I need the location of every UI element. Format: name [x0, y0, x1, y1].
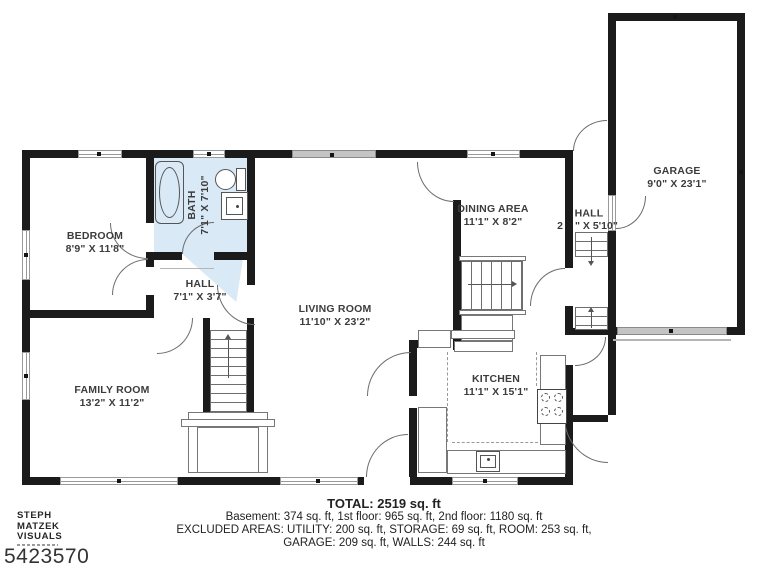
room-dims: 11'10" X 23'2": [299, 316, 372, 329]
wall-stair-right: [247, 318, 254, 414]
wall-bedroom-south: [22, 310, 154, 318]
counter-kitchen-south: [447, 450, 566, 474]
wall-hall-east-stub: [247, 260, 255, 285]
stair-center-arrow-head: [512, 281, 517, 287]
door-arc-hall-top-entry: [573, 120, 607, 151]
counter-dash-east: [536, 352, 537, 386]
wall-kitchen-west-lower: [409, 408, 417, 477]
excluded-areas: EXCLUDED AREAS: UTILITY: 200 sq. ft, STO…: [0, 524, 768, 537]
wall-garage-bottom-right: [727, 327, 745, 335]
wall-bedroom-east-upper: [146, 158, 154, 223]
label-dining-area: DINING AREA 11'1" X 8'2": [457, 203, 528, 229]
photo-id: 5423570: [4, 545, 89, 569]
wall-bath-east: [247, 158, 255, 260]
floor-areas: Basement: 374 sq. ft, 1st floor: 965 sq.…: [0, 511, 768, 524]
bathtub-basin: [159, 167, 180, 218]
watermark-line: VISUALS: [17, 532, 62, 543]
label-bath: BATH 7'1" X 7'10": [186, 175, 212, 234]
room-name: BATH: [186, 175, 199, 234]
wall-tick: [207, 152, 211, 156]
stove-burner-2: [554, 393, 563, 402]
stove-burner-3: [541, 407, 550, 416]
stove-burner-4: [554, 407, 563, 416]
floor-plan: BEDROOM 8'9" X 11'8" BATH 7'1" X 7'10" H…: [0, 0, 768, 576]
room-dims: 13'2" X 11'2": [74, 397, 149, 410]
counter-dash-west: [447, 352, 448, 442]
door-arc-bedroom-lower: [112, 259, 148, 295]
wall-tick: [669, 329, 673, 333]
wall-vestibule-east: [608, 335, 616, 415]
room-name: GARAGE: [647, 165, 706, 178]
label-kitchen: KITCHEN 11'1" X 15'1": [464, 373, 529, 399]
wall-tick: [24, 253, 28, 257]
stair-family-arrow-line: [228, 340, 229, 378]
bath-sink-basin: [226, 197, 243, 215]
kitchen-sink-faucet: [487, 458, 490, 461]
wall-east-dining: [565, 150, 573, 268]
total-area: TOTAL: 2519 sq. ft: [0, 497, 768, 511]
counter-dining-edge-right: [451, 330, 515, 339]
stair-hall-down-line: [591, 237, 592, 261]
door-arc-kitchen-living: [367, 352, 411, 396]
wall-tick: [673, 15, 677, 19]
wall-stair-left: [203, 318, 210, 414]
room-dims: 11'1" X 8'2": [457, 216, 528, 229]
garage-door-sill: [613, 339, 731, 341]
hall-living-threshold: [160, 268, 214, 269]
kitchen-sink-basin: [480, 455, 496, 468]
wall-tick: [491, 152, 495, 156]
stair-family-arrow-head: [225, 334, 231, 339]
stair-center-landing-2: [454, 341, 513, 352]
door-arc-dining-hall: [530, 268, 565, 306]
door-arc-vestibule: [575, 337, 606, 366]
room-name: BEDROOM: [66, 230, 125, 243]
label-hall-2-dims-right: " X 5'10": [575, 220, 618, 232]
counter-dash-south: [452, 442, 538, 443]
room-dims: 7'1" X 3'7": [173, 291, 226, 304]
room-dims: 8'9" X 11'8": [66, 243, 125, 256]
stair-hall-down-head: [588, 261, 594, 266]
label-living-room: LIVING ROOM 11'10" X 23'2": [299, 303, 372, 329]
room-name: KITCHEN: [464, 373, 529, 386]
door-arc-dining-living: [417, 162, 454, 202]
wall-tick: [739, 170, 743, 174]
wall-tick: [483, 479, 487, 483]
toilet-bowl: [215, 169, 236, 190]
stair-hall-up-head: [588, 307, 594, 312]
toilet-tank: [236, 168, 246, 191]
counter-dining-edge-left: [418, 330, 451, 348]
label-hall-2-name: HALL: [575, 208, 604, 221]
room-name: FAMILY ROOM: [74, 384, 149, 397]
front-door-opening: [364, 477, 410, 485]
wall-garage-left-upper: [608, 13, 616, 196]
counter-kitchen-west: [418, 407, 447, 473]
room-name: HALL: [173, 278, 226, 291]
garage-walls-areas: GARAGE: 209 sq. ft, WALLS: 244 sq. ft: [0, 537, 768, 550]
room-name: HALL: [575, 208, 604, 221]
door-arc-hall-garage: [616, 196, 646, 229]
watermark: STEPH MATZEK VISUALS: [17, 511, 62, 543]
label-bedroom: BEDROOM 8'9" X 11'8": [66, 230, 125, 256]
wall-garage-left-lower: [608, 230, 616, 328]
room-dims: 9'0" X 23'1": [647, 178, 706, 191]
door-arc-front-entry: [366, 434, 408, 477]
label-hall-2-dims-left: 2: [549, 220, 563, 232]
label-hall: HALL 7'1" X 3'7": [173, 278, 226, 304]
wall-tick: [24, 374, 28, 378]
room-dims: 7'1" X 7'10": [199, 175, 212, 234]
stair-family-base-bar: [181, 419, 275, 427]
wall-tick: [330, 153, 334, 157]
stair-center-arrow-line: [468, 284, 512, 285]
wall-tick: [316, 479, 320, 483]
wall-tick: [117, 479, 121, 483]
bath-sink-drain: [236, 205, 239, 208]
label-family-room: FAMILY ROOM 13'2" X 11'2": [74, 384, 149, 410]
room-name: LIVING ROOM: [299, 303, 372, 316]
window-living-top: [292, 150, 376, 158]
wall-garage-right: [737, 13, 745, 335]
wall-tick: [97, 152, 101, 156]
stair-family-base-inner: [197, 427, 259, 473]
stair-hall-up-line: [591, 312, 592, 328]
area-summary: TOTAL: 2519 sq. ft Basement: 374 sq. ft,…: [0, 497, 768, 576]
wall-east-mid: [565, 306, 573, 335]
label-garage: GARAGE 9'0" X 23'1": [647, 165, 706, 191]
room-name: DINING AREA: [457, 203, 528, 216]
stove-burner-1: [541, 393, 550, 402]
wall-bath-south-west: [146, 252, 182, 260]
room-dims: 11'1" X 15'1": [464, 386, 529, 399]
door-arc-family: [157, 318, 193, 354]
watermark-line: STEPH: [17, 511, 62, 522]
